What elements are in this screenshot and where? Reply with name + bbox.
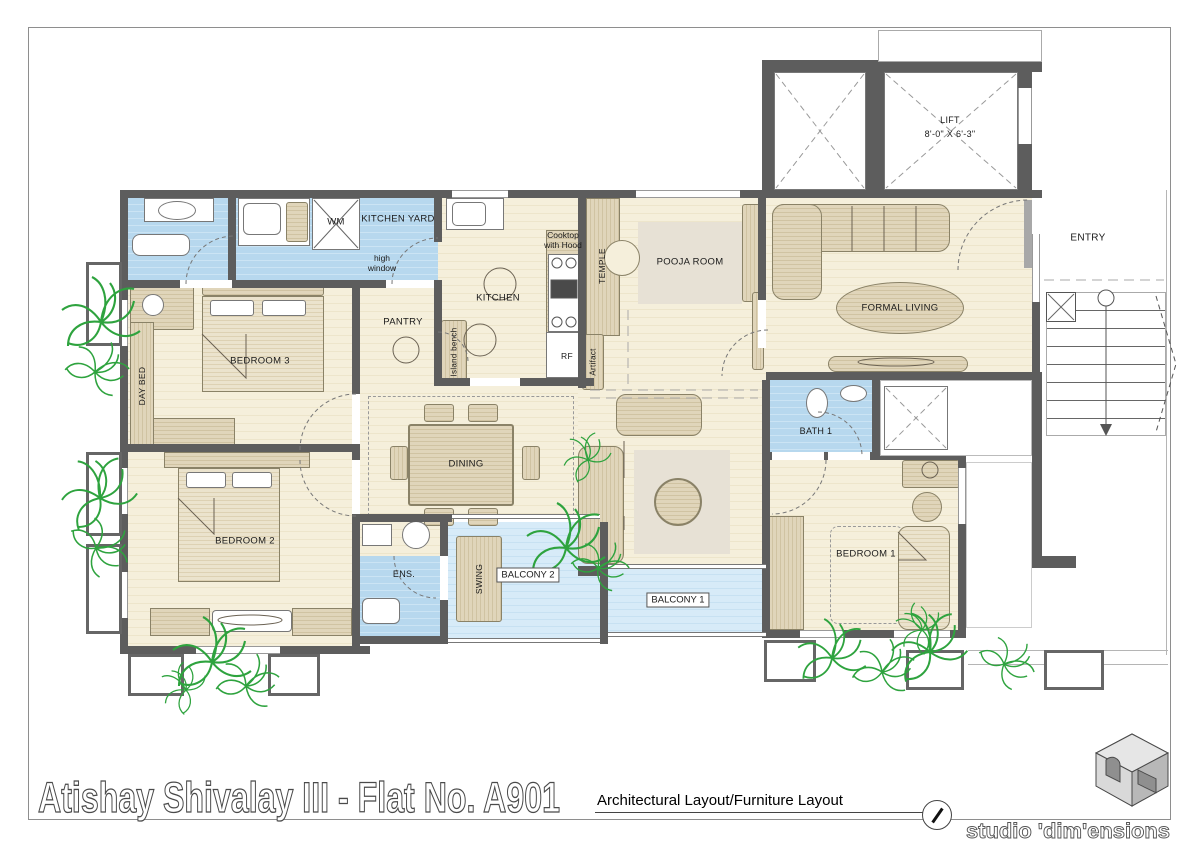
label-day-bed: DAY BED	[137, 367, 147, 406]
planter-box	[268, 654, 320, 696]
bedroom2-headboard	[164, 452, 310, 468]
wall-segment	[1032, 380, 1042, 568]
stair-newel	[1046, 292, 1076, 322]
dining-chair	[424, 404, 454, 422]
balcony-rail	[608, 632, 766, 637]
label-bedroom1: BEDROOM 1	[836, 549, 896, 560]
label-kitchen: KITCHEN	[476, 293, 520, 304]
label-lift: LIFT	[940, 115, 960, 125]
dining-chair	[468, 404, 498, 422]
wall-segment	[762, 380, 770, 638]
bedroom2-console-right	[292, 608, 352, 636]
ensuite-tub	[362, 598, 400, 624]
planter-box	[86, 452, 122, 536]
room-pantry	[360, 288, 438, 386]
door-opening	[352, 394, 360, 444]
planter-box	[906, 650, 964, 690]
subtitle-underline	[595, 812, 925, 813]
label-formal-living: FORMAL LIVING	[862, 303, 939, 314]
window	[958, 468, 966, 524]
bedroom2-console-left	[150, 608, 210, 636]
planter-box	[86, 262, 122, 346]
label-entry: ENTRY	[1070, 233, 1105, 244]
kitchen-yard-sink	[243, 203, 281, 235]
door-opening	[180, 280, 232, 288]
sliding-door-rail	[452, 514, 600, 519]
label-ensuite: ENS.	[393, 569, 415, 579]
wall-segment	[120, 444, 360, 452]
wall-segment	[872, 380, 880, 460]
label-wm: WM	[327, 217, 344, 228]
label-kitchen-yard: KITCHEN YARD	[361, 214, 434, 225]
window	[452, 190, 508, 198]
window	[1018, 88, 1032, 144]
door-opening	[352, 460, 360, 514]
kitchen-yard-drainboard	[286, 202, 308, 242]
wall-segment	[762, 60, 774, 192]
planter-box	[86, 544, 122, 634]
door-opening	[440, 556, 448, 600]
bedroom2-pillow	[232, 472, 272, 488]
bedroom2-tv-shelf	[212, 610, 292, 632]
sheet-subtitle: Architectural Layout/Furniture Layout	[597, 792, 843, 809]
label-lift-size: 8'-0" X 6'-3"	[925, 129, 976, 139]
label-pantry: PANTRY	[383, 317, 422, 328]
dining-chair	[522, 446, 540, 480]
dining-chair	[390, 446, 408, 480]
bath-sink	[158, 201, 196, 220]
door-opening	[470, 378, 520, 386]
shaft	[884, 386, 948, 450]
living-round-table	[654, 478, 702, 526]
powder-wc	[402, 521, 430, 549]
floor-plan-sheet: Atishay Shivalay III - Flat No. A901 stu…	[0, 0, 1200, 849]
label-pooja: POOJA ROOM	[657, 257, 724, 268]
wall-segment	[434, 280, 442, 386]
powder-sink	[362, 524, 392, 546]
balcony-rail	[448, 638, 600, 643]
wall-segment	[352, 636, 448, 644]
bedroom1-rug-outline	[830, 526, 904, 624]
label-artifact: Artifact	[589, 348, 598, 375]
label-high-window: high window	[363, 254, 401, 274]
label-balcony1: BALCONY 1	[646, 593, 709, 608]
window	[894, 630, 950, 638]
planter-box	[1044, 650, 1104, 690]
label-balcony2: BALCONY 2	[496, 568, 559, 583]
bedroom2-pillow	[186, 472, 226, 488]
wall-segment	[352, 514, 452, 522]
studio-logo-text: studio 'dim'ensions	[966, 820, 1170, 843]
door-opening	[772, 452, 824, 460]
label-island-bench: Island bench	[450, 328, 459, 377]
wall-segment	[228, 198, 236, 280]
living-sofa-top	[616, 394, 702, 436]
wall-segment	[1032, 556, 1076, 568]
bedroom3-pillow	[210, 300, 254, 316]
kitchen-sink	[452, 202, 486, 226]
label-temple: TEMPLE	[597, 248, 607, 284]
formal-sofa-chaise	[772, 204, 822, 300]
window	[1032, 234, 1040, 302]
boundary-line	[1166, 190, 1167, 655]
entry-door-leaf	[1024, 200, 1032, 268]
lift-parapet	[878, 30, 1042, 62]
bath1-wc	[806, 388, 828, 418]
window	[196, 646, 280, 654]
label-cooktop: Cooktop with Hood	[539, 231, 587, 251]
bedroom1-bed	[898, 526, 950, 630]
planter-box	[128, 654, 184, 696]
shaft	[774, 72, 866, 190]
door-opening	[758, 300, 766, 348]
wall-segment	[600, 522, 608, 644]
cooktop-appliance	[548, 254, 579, 332]
label-rf: RF	[561, 351, 573, 361]
window	[636, 190, 740, 198]
bath-tub	[132, 234, 190, 256]
door-opening	[386, 280, 434, 288]
logo-slash	[931, 808, 943, 824]
studio-logo-circle	[922, 800, 952, 830]
label-bath1: BATH 1	[800, 426, 833, 436]
door-opening	[828, 452, 870, 460]
window	[800, 630, 844, 638]
bedroom3-stool	[142, 294, 164, 316]
wall-segment	[578, 190, 586, 388]
label-bedroom3: BEDROOM 3	[230, 356, 290, 367]
temple-niche	[604, 240, 640, 276]
wall-segment	[434, 198, 442, 242]
wall-segment	[866, 60, 884, 192]
balcony-rail	[608, 564, 766, 569]
bedroom3-pillow	[262, 300, 306, 316]
bedroom1-wardrobe	[768, 516, 804, 630]
wall-segment	[766, 372, 1042, 380]
label-swing: SWING	[474, 564, 484, 594]
planter-box	[764, 640, 816, 682]
wall-segment	[578, 566, 608, 576]
formal-tv-console	[828, 356, 968, 372]
terrace-ledge	[966, 462, 1032, 628]
label-dining: DINING	[448, 459, 483, 470]
label-bedroom2: BEDROOM 2	[215, 536, 275, 547]
bedroom1-chair	[912, 492, 942, 522]
bath1-sink	[840, 385, 867, 402]
bedroom1-desk	[902, 460, 960, 488]
